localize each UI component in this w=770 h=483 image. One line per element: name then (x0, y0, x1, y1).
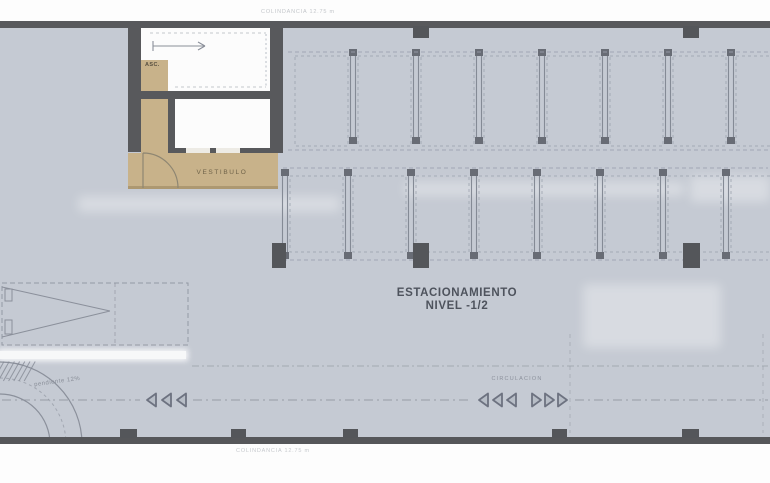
core-wall-right (270, 21, 283, 152)
divider-cap (538, 137, 546, 144)
stall-divider (661, 172, 666, 255)
ramp-pier (5, 320, 12, 334)
structural-column (683, 243, 700, 268)
divider-cap (727, 137, 735, 144)
structural-column (413, 26, 429, 38)
parking-stall (416, 176, 469, 252)
core-wall-inner (168, 99, 175, 148)
parking-stall (484, 56, 537, 146)
arrow-left-icon (493, 394, 502, 407)
divider-cap (664, 137, 672, 144)
parking-stall (421, 56, 474, 146)
hatch-line (3, 362, 14, 382)
divider-cap (407, 169, 415, 176)
arrow-right-icon (545, 394, 554, 407)
ramp-pier (5, 289, 12, 301)
arrow-right-icon (558, 394, 567, 407)
boundary-label-top: COLINDANCIA 12.75 m (248, 9, 348, 15)
generated-linework (2, 49, 770, 400)
parking-stall (605, 176, 658, 252)
divider-cap (349, 137, 357, 144)
divider-cap (596, 169, 604, 176)
stall-divider (598, 172, 603, 255)
door-swing-icon (143, 153, 178, 188)
parking-floor-plan: COLINDANCIA 12.75 m COLINDANCIA 12.75 m … (0, 0, 770, 483)
parking-stall (547, 56, 600, 146)
arrow-left-icon (162, 394, 171, 407)
divider-cap (281, 169, 289, 176)
divider-cap (596, 252, 604, 259)
parking-stall (542, 176, 595, 252)
parking-stall (479, 176, 532, 252)
stall-divider (346, 172, 351, 255)
circulation-label: CIRCULACION (467, 376, 567, 382)
stall-divider (729, 52, 734, 140)
divider-cap (412, 137, 420, 144)
door-opening (186, 148, 210, 153)
circulation-arrows (147, 394, 567, 407)
divider-cap (722, 252, 730, 259)
structural-column (231, 429, 246, 438)
parking-stall (358, 56, 411, 146)
divider-cap (470, 252, 478, 259)
boundary-label-bottom: COLINDANCIA 12.75 m (218, 448, 328, 454)
parking-stall (290, 176, 343, 252)
ramp-direction-arrow-icon (153, 41, 205, 51)
parking-stall (736, 56, 770, 146)
level-title: ESTACIONAMIENTO NIVEL -1/2 (357, 287, 557, 313)
divider-cap (470, 169, 478, 176)
perimeter-wall-bottom (0, 437, 770, 444)
arrow-left-icon (479, 394, 488, 407)
ramp-slope-triangle (2, 287, 110, 337)
divider-cap (344, 169, 352, 176)
divider-cap (659, 252, 667, 259)
structural-column (343, 429, 358, 438)
structural-column (683, 26, 699, 38)
divider-cap (659, 169, 667, 176)
structural-column (120, 429, 137, 438)
stall-divider (603, 52, 608, 140)
arrow-left-icon (507, 394, 516, 407)
structural-column (413, 243, 429, 268)
arrow-left-icon (177, 394, 186, 407)
divider-cap (475, 137, 483, 144)
divider-cap (344, 252, 352, 259)
perimeter-wall-top (0, 21, 770, 28)
core-wall-middle (141, 91, 270, 99)
structural-column (682, 429, 699, 438)
hatch-line (9, 362, 20, 382)
arrow-right-icon (532, 394, 541, 407)
stall-divider (472, 172, 477, 255)
stall-divider (540, 52, 545, 140)
stall-divider (535, 172, 540, 255)
divider-cap (533, 169, 541, 176)
ramp-hatching (0, 362, 35, 382)
parking-stall (731, 176, 770, 252)
parking-stall (353, 176, 406, 252)
door-opening (216, 148, 240, 153)
arrow-left-icon (147, 394, 156, 407)
level-title-line1: ESTACIONAMIENTO (357, 287, 557, 300)
stall-divider (724, 172, 729, 255)
ramp-bay-outline (2, 283, 188, 345)
elevator-label: ASC. (145, 62, 160, 68)
level-title-line2: NIVEL -1/2 (357, 300, 557, 313)
core-wall-left (128, 21, 141, 152)
parking-stall (673, 56, 726, 146)
stall-divider (351, 52, 356, 140)
parking-stall (295, 56, 348, 146)
stall-divider (666, 52, 671, 140)
stall-divider (477, 52, 482, 140)
divider-cap (722, 169, 730, 176)
parking-stall (668, 176, 721, 252)
structural-column (272, 243, 286, 268)
structural-column (552, 429, 567, 438)
hatch-line (24, 362, 35, 382)
plan-linework (0, 0, 770, 483)
divider-cap (601, 137, 609, 144)
curved-ramp-center-arc (0, 378, 66, 444)
vestibule-label: VESTIBULO (177, 169, 267, 176)
divider-cap (533, 252, 541, 259)
parking-stall (610, 56, 663, 146)
stall-divider (414, 52, 419, 140)
